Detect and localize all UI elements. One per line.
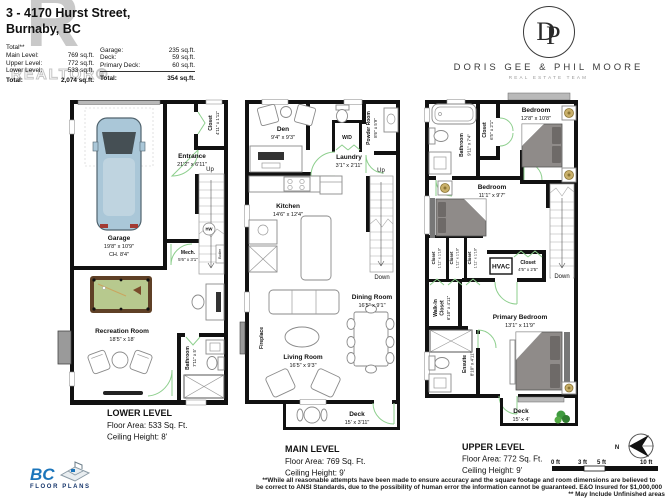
window: [70, 372, 75, 386]
svg-text:Fireplace: Fireplace: [259, 327, 265, 349]
fridge-icon: [320, 176, 342, 194]
svg-text:Up: Up: [206, 167, 214, 173]
car-icon: [85, 108, 153, 230]
room-label: Closet 1'11" x 1'10": [449, 247, 460, 268]
svg-text:Down: Down: [554, 274, 569, 280]
svg-text:N: N: [615, 445, 619, 451]
svg-text:Powder Room: Powder Room: [366, 111, 372, 145]
svg-text:Boiler: Boiler: [218, 248, 222, 258]
room-label: Deck: [349, 411, 365, 418]
window: [300, 400, 326, 405]
desk-icon: [192, 284, 224, 320]
svg-text:10 ft: 10 ft: [640, 460, 652, 466]
sink-icon: [384, 108, 398, 132]
room-label: Ensuite 8'10" x 4'11": [462, 351, 475, 376]
hot-water-tank-icon: HW: [203, 223, 215, 235]
svg-text:Closet: Closet: [449, 251, 454, 264]
svg-text:Down: Down: [374, 275, 389, 281]
window: [206, 100, 222, 104]
area-total-row: Total: 2,074 sq.ft.: [6, 77, 94, 84]
nightstand: [438, 181, 452, 195]
disclaimer: **While all reasonable attempts have bee…: [253, 477, 665, 499]
level-area: Floor Area: 769 Sq. Ft.: [285, 457, 365, 466]
area-row: Deck: 59 sq.ft.: [100, 54, 195, 61]
svg-text:CH. 8'4": CH. 8'4": [109, 252, 129, 258]
closet-double-door: [500, 118, 513, 131]
level-ceiling: Ceiling Height: 8': [107, 433, 168, 442]
brand-logo: D P DORIS GEE & PHIL MOORE REAL ESTATE T…: [430, 6, 667, 80]
closet-double-door: [500, 133, 513, 146]
living-furniture: [265, 290, 341, 398]
deck-door: [373, 403, 394, 424]
scale-bar: 0 ft 3 ft 5 ft 10 ft: [551, 460, 658, 471]
svg-text:Bathroom: Bathroom: [185, 346, 191, 370]
toilet-icon: [218, 357, 224, 370]
floorplan-sheet: R REALTOR® 3 - 4170 Hurst Street, Burnab…: [0, 0, 667, 500]
level-ceiling: Ceiling Height: 9': [285, 469, 346, 478]
level-title: MAIN LEVEL: [285, 444, 340, 454]
svg-text:12'8" x 10'8": 12'8" x 10'8": [521, 116, 551, 122]
dp-monogram-icon: D P: [523, 6, 575, 58]
room-label: Dining Room: [352, 294, 393, 301]
svg-text:21'2" x 6'11": 21'2" x 6'11": [177, 162, 207, 168]
room-label: Entrance: [178, 153, 206, 160]
area-row: Primary Deck: 60 sq.ft.: [100, 62, 195, 69]
room-label: Bathroom 7'11" x 5': [185, 346, 197, 370]
svg-text:3'1" x 2'11": 3'1" x 2'11": [336, 163, 363, 169]
sofa-icon: [269, 290, 339, 314]
tv-console: [103, 391, 143, 395]
svg-text:8'6" x 5'9": 8'6" x 5'9": [373, 118, 378, 138]
svg-text:16'5" x 9'1": 16'5" x 9'1": [358, 303, 385, 309]
svg-text:7'11" x 5': 7'11" x 5': [192, 349, 197, 367]
svg-text:Closet: Closet: [208, 115, 214, 131]
kitchen-fixtures: [249, 176, 342, 280]
svg-text:15' x 3'11": 15' x 3'11": [345, 420, 370, 426]
level-title: LOWER LEVEL: [107, 408, 173, 418]
room-label: Laundry: [336, 154, 362, 161]
divider: [100, 71, 195, 72]
room-label: Walk-In Closet 6'10" x 4'11": [433, 295, 451, 320]
pool-table-icon: [90, 276, 152, 313]
svg-text:16'5" x 9'3": 16'5" x 9'3": [289, 363, 316, 369]
dining-furniture: [347, 305, 394, 373]
svg-text:Closet: Closet: [431, 251, 436, 264]
window: [262, 100, 288, 105]
svg-text:5'6" x 3'1": 5'6" x 3'1": [178, 257, 198, 262]
room-label: Closet 1'11" x 1'10": [431, 247, 442, 268]
disclaimer-line2: be correct to ANSI Standards, due to the…: [253, 484, 665, 491]
room-label: Living Room: [283, 354, 323, 361]
room-label: Bathroom 9'11" x 7'4": [459, 133, 472, 157]
laundry-bifold: [336, 145, 360, 150]
level-area: Floor Area: 533 Sq. Ft.: [107, 421, 187, 430]
room-label: Closet 6'5" x 2'1": [482, 120, 494, 140]
svg-text:1'11" x 1'10": 1'11" x 1'10": [438, 247, 442, 268]
sink-icon: [429, 374, 451, 392]
address-line1: 3 - 4170 Hurst Street,: [6, 6, 130, 20]
area-table-left: Total** Main Level: 769 sq.ft. Upper Lev…: [6, 44, 94, 84]
room-label: Kitchen: [276, 203, 300, 210]
svg-text:13'1" x 11'9": 13'1" x 11'9": [505, 323, 535, 329]
svg-text:HVAC: HVAC: [492, 264, 510, 271]
plant-icon: [555, 411, 571, 424]
window: [425, 108, 430, 122]
window: [70, 120, 75, 134]
svg-text:0 ft: 0 ft: [551, 460, 560, 466]
disclaimer-line1: **While all reasonable attempts have bee…: [253, 477, 665, 484]
svg-text:1'11" x 1'10": 1'11" x 1'10": [456, 247, 460, 268]
room-label: Closet 4'11" x 1'11": [208, 111, 220, 135]
window: [245, 292, 250, 312]
area-total-row: Total: 354 sq.ft.: [100, 75, 195, 82]
toilet-icon: [429, 356, 435, 370]
svg-text:6'10" x 4'11": 6'10" x 4'11": [446, 295, 451, 320]
level-ceiling: Ceiling Height: 9': [462, 466, 523, 475]
room-label: Closet 1'11" x 1'10": [467, 247, 478, 268]
area-row: Main Level: 769 sq.ft.: [6, 52, 94, 59]
svg-text:Walk-In: Walk-In: [433, 299, 439, 317]
svg-text:8'10" x 4'11": 8'10" x 4'11": [470, 351, 475, 376]
island: [301, 216, 331, 280]
room-label: Fireplace: [259, 327, 265, 349]
fireplace-chimney: [58, 331, 71, 364]
den-door: [311, 152, 335, 176]
garage-door: [78, 101, 160, 105]
level-area: Floor Area: 772 Sq. Ft.: [462, 455, 542, 464]
svg-text:4'5" x 2'5": 4'5" x 2'5": [518, 267, 538, 272]
room-label: Bedroom: [522, 107, 551, 114]
svg-text:14'6" x 12'4": 14'6" x 12'4": [273, 212, 303, 218]
area-row: Lower Level: 533 sq.ft.: [6, 67, 94, 74]
primary-door: [495, 282, 517, 304]
area-row: Upper Level: 772 sq.ft.: [6, 60, 94, 67]
window: [344, 100, 362, 105]
rec-door: [148, 370, 172, 396]
balcony-edge: [508, 93, 570, 100]
svg-text:Ensuite: Ensuite: [462, 355, 468, 373]
svg-text:9'11" x 7'4": 9'11" x 7'4": [467, 134, 472, 156]
room-label: Den: [277, 126, 289, 133]
area-row: Garage: 235 sq.ft.: [100, 47, 195, 54]
svg-text:Closet: Closet: [482, 122, 488, 138]
brand-tagline: REAL ESTATE TEAM: [430, 75, 667, 80]
floorplan-sketch-icon: [55, 459, 93, 483]
closet-bifold-door: [198, 112, 205, 134]
svg-text:HW: HW: [206, 227, 213, 232]
level-title: UPPER LEVEL: [462, 442, 525, 452]
svg-text:9'4" x 9'3": 9'4" x 9'3": [271, 135, 295, 141]
stairs-down: [550, 184, 574, 279]
table-and-chairs: [87, 350, 153, 375]
svg-text:6'5" x 2'1": 6'5" x 2'1": [489, 120, 494, 140]
svg-text:1'11" x 1'10": 1'11" x 1'10": [474, 247, 478, 268]
area-table-right: Garage: 235 sq.ft. Deck: 59 sq.ft. Prima…: [100, 47, 195, 83]
svg-text:18'5" x 18': 18'5" x 18': [109, 337, 134, 343]
svg-text:Closet: Closet: [467, 251, 472, 264]
stairs-main: [370, 176, 393, 272]
window: [425, 196, 430, 234]
property-address: 3 - 4170 Hurst Street, Burnaby, BC: [6, 6, 130, 37]
room-label: Primary Bedroom: [493, 314, 548, 321]
svg-text:19'8" x 10'9": 19'8" x 10'9": [104, 244, 134, 250]
svg-text:11'1" x 9'7": 11'1" x 9'7": [479, 193, 506, 199]
brand-name: DORIS GEE & PHIL MOORE: [430, 62, 667, 73]
bc-floor-plans-logo: BC FLOOR PLANS: [30, 459, 93, 490]
scale-and-compass: N 0 ft 3 ft 5 ft 10 ft: [545, 425, 667, 475]
room-label: Deck: [513, 408, 529, 415]
bed-icon: [430, 198, 486, 238]
bath-door: [186, 337, 200, 345]
area-table-title: Total**: [6, 44, 94, 51]
upper-level-plan: HVAC: [418, 90, 586, 475]
room-label: Mech.: [181, 250, 196, 256]
disclaimer-line3: ** May Include Unfinished areas: [253, 491, 665, 498]
room-label: Powder Room 8'6" x 5'9": [366, 111, 378, 145]
compass-icon: N: [615, 434, 654, 458]
svg-text:4'11" x 1'11": 4'11" x 1'11": [215, 111, 220, 135]
main-level-plan: Den 9'4" x 9'3" Powder Room 8'6" x 5'9" …: [235, 92, 405, 477]
coffee-table: [285, 327, 319, 347]
hvac-unit: HVAC: [490, 258, 512, 274]
room-label: Bedroom: [478, 184, 507, 191]
address-line2: Burnaby, BC: [6, 22, 81, 36]
svg-text:Closet: Closet: [440, 300, 446, 316]
ensuite-door: [478, 330, 496, 348]
svg-text:Up: Up: [377, 168, 385, 174]
nightstand: [562, 106, 576, 182]
svg-text:5 ft: 5 ft: [597, 460, 606, 466]
room-label: Closet: [520, 260, 536, 266]
room-label: Recreation Room: [95, 328, 149, 335]
sink-icon: [249, 220, 277, 244]
washer-dryer-label: W/D: [342, 135, 352, 141]
svg-text:15' x 4': 15' x 4': [512, 417, 529, 423]
bed-icon: [522, 124, 562, 167]
bed-icon: [510, 332, 576, 394]
boiler-icon: Boiler: [216, 245, 224, 263]
sink-icon: [429, 152, 451, 174]
lower-level-plan: HW Boiler: [55, 92, 235, 442]
window: [186, 400, 206, 405]
svg-text:Bathroom: Bathroom: [459, 133, 465, 157]
svg-text:3 ft: 3 ft: [578, 460, 587, 466]
fireplace: [240, 322, 245, 354]
room-label: Garage: [108, 235, 131, 242]
main-deck: [283, 404, 400, 430]
